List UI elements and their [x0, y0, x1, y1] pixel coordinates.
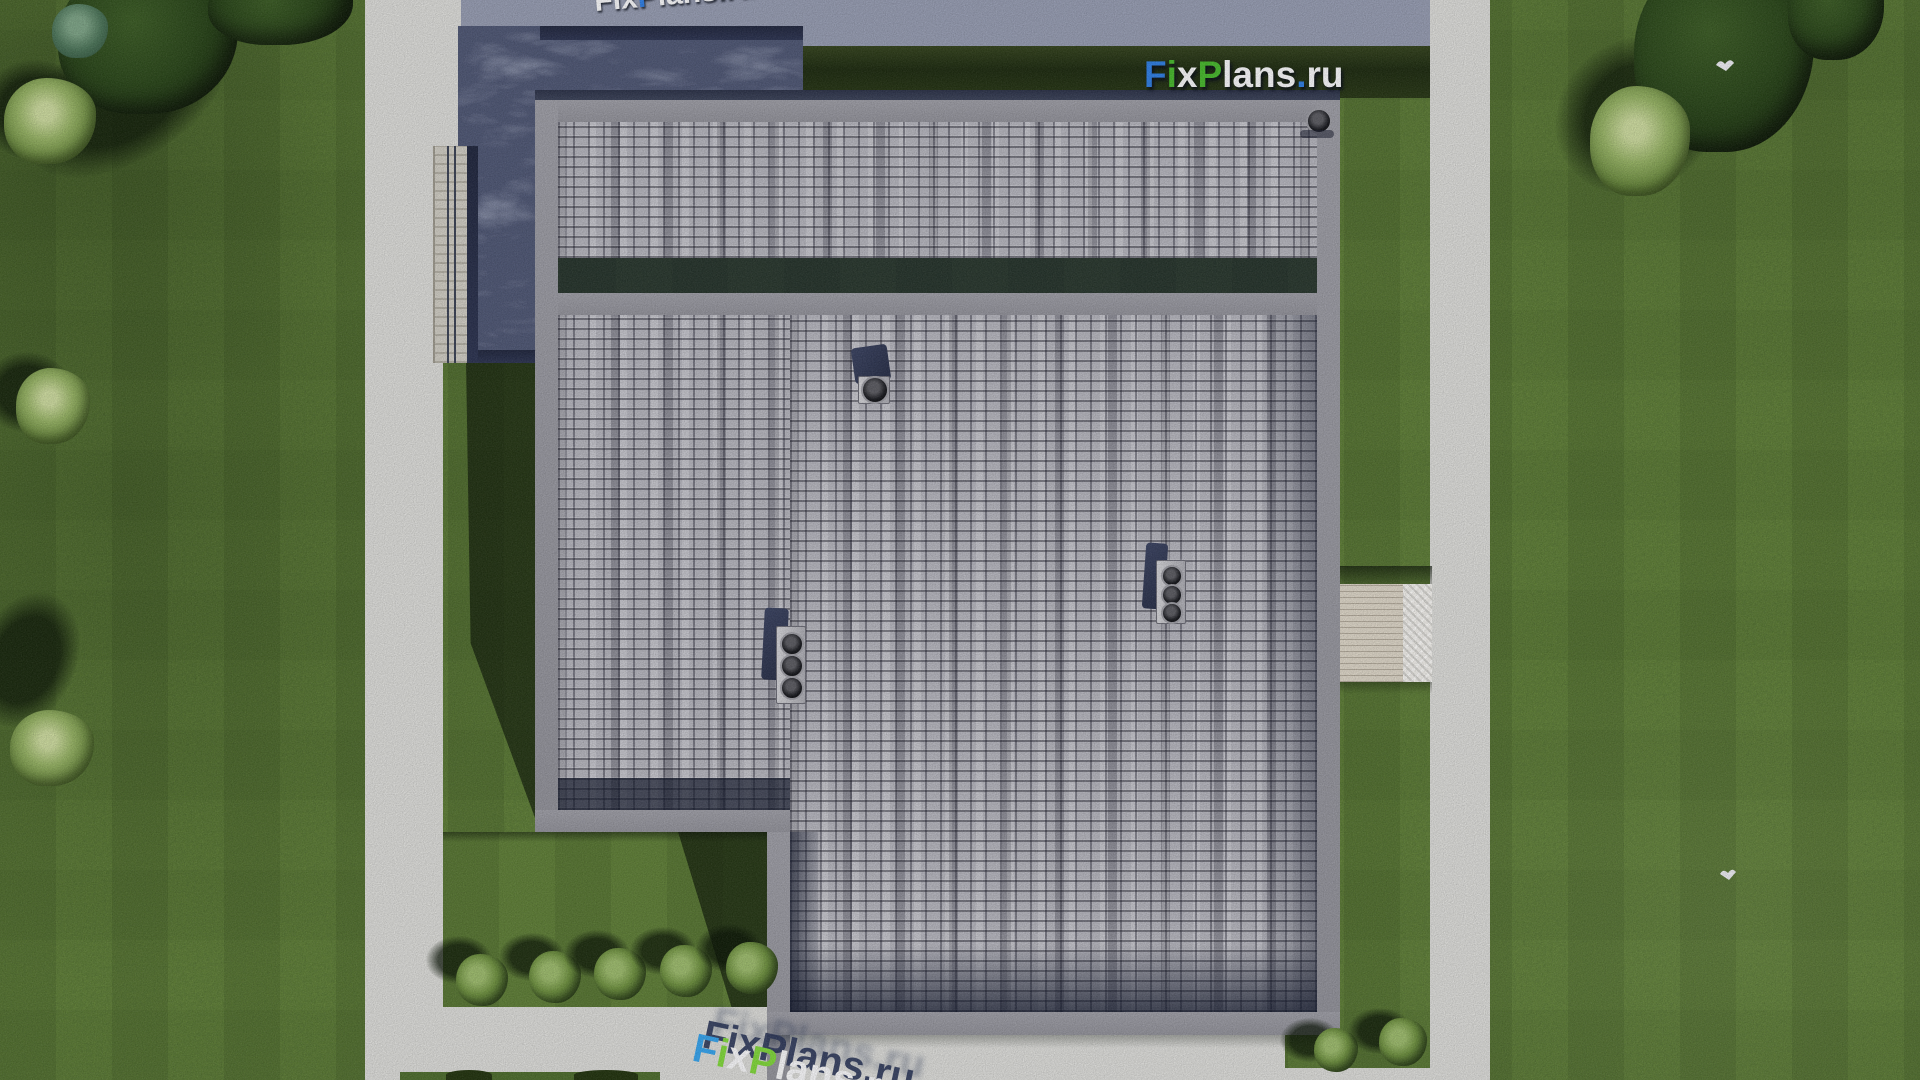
fixplans-logo-top-clipped: FixPlans.ru	[594, 0, 824, 15]
bush	[726, 942, 778, 994]
logo-seg-x: x	[1177, 54, 1198, 95]
parapet-notch-horizontal	[535, 810, 790, 832]
logo-seg: x	[619, 0, 639, 15]
deck-under-shadow	[1340, 682, 1432, 694]
logo-seg-p: P	[1197, 54, 1222, 95]
curb-joint-line	[454, 146, 456, 363]
south-shadow-band	[767, 945, 1317, 1012]
chimney-west-vent-1	[780, 632, 804, 656]
flat-roof-west-edge	[467, 146, 478, 363]
chimney-west-vent-3	[780, 676, 804, 700]
logo-seg-f: F	[1144, 54, 1167, 95]
south-contact-shadow	[767, 1035, 1340, 1048]
render-canvas: FixPlans.ru FixPlans.ru FixPlans.ru	[0, 0, 1920, 1080]
lower-roof-shingles-west	[558, 315, 790, 810]
logo-seg-i: i	[1167, 54, 1177, 95]
deck-shadow	[1340, 566, 1432, 586]
deck-wood-planks	[1340, 584, 1403, 682]
bush	[1379, 1018, 1427, 1066]
bird-icon	[1714, 56, 1736, 72]
logo-seg: lans	[656, 0, 719, 12]
logo-seg-dot: .	[1296, 54, 1306, 95]
stone-curb-wall	[433, 146, 469, 363]
bird-icon	[1718, 866, 1738, 881]
logo-seg: F	[594, 0, 614, 15]
parapet-south	[767, 1012, 1340, 1035]
curb-joint-line	[447, 146, 449, 363]
parapet-contact-shadow	[443, 832, 767, 842]
left-path	[365, 0, 443, 1080]
logo-seg: ru	[724, 0, 757, 7]
logo-seg-ru: ru	[1306, 54, 1343, 95]
logo-seg-lans: lans	[1222, 54, 1296, 95]
east-shadow-band	[1258, 315, 1317, 1012]
upper-roof-shingles	[558, 122, 1317, 258]
logo-seg: P	[636, 0, 659, 14]
logo-seg: .	[716, 0, 727, 7]
parapet-east	[1317, 100, 1340, 1035]
lower-roof-shingles-east	[790, 315, 1317, 1012]
chimney-west-vent-2	[780, 654, 804, 678]
deck-gravel-strip	[1403, 584, 1432, 682]
notch-shadow-band	[558, 778, 790, 810]
parapet-north	[535, 100, 1340, 122]
bush-top-peek	[446, 1070, 492, 1080]
upper-roof-shadow-band	[558, 258, 1317, 293]
fixplans-logo-top-text: FixPlans.ru	[594, 0, 757, 15]
chimney-east-vent-3	[1161, 602, 1183, 624]
parapet-west	[535, 100, 558, 832]
right-path	[1430, 0, 1490, 1080]
bush-top-peek	[574, 1070, 638, 1080]
chimney-north-vent	[861, 376, 889, 404]
fixplans-logo: FixPlans.ru	[1144, 54, 1343, 96]
parapet-middle	[535, 293, 1340, 315]
corner-vent-base-shadow	[1300, 130, 1334, 138]
bottom-path-strip	[1285, 1068, 1430, 1080]
